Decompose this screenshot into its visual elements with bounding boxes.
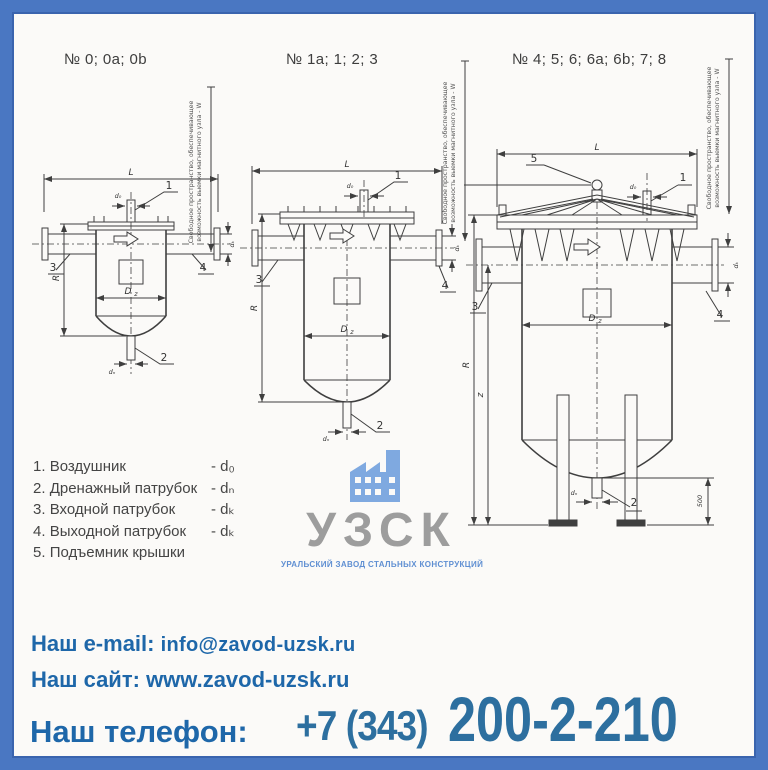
centerlines: [240, 180, 454, 440]
legend-item: 1. Воздушник - d₀: [33, 456, 235, 478]
callout-2: 2: [161, 352, 168, 364]
drain: dₙ 2: [109, 336, 174, 376]
legend-num: 2.: [33, 480, 46, 497]
callout-2: 2: [631, 497, 638, 509]
dim-label-dn: dₙ: [323, 435, 330, 443]
callout-2: 2: [377, 420, 384, 432]
legend-item: 5. Подъемник крышки: [33, 542, 235, 564]
logo-tagline: УРАЛЬСКИЙ ЗАВОД СТАЛЬНЫХ КОНСТРУКЦИЙ: [281, 560, 475, 569]
callout-5: 5: [531, 153, 538, 165]
contact-email-line: Наш e-mail: info@zavod-uzsk.ru: [31, 631, 356, 657]
dim-label-R: R: [250, 305, 260, 311]
email-value: info@zavod-uzsk.ru: [161, 634, 356, 656]
company-logo: УЗСК УРАЛЬСКИЙ ЗАВОД СТАЛЬНЫХ КОНСТРУКЦИ…: [281, 450, 475, 569]
note-line-1: Свободное пространство, обеспечивающее: [187, 101, 195, 244]
callout-4: 4: [200, 262, 207, 274]
callout-3: 3: [50, 262, 57, 274]
phone-label: Наш телефон:: [30, 714, 248, 750]
note-line-2: возможность выемки магнитного узла - W: [714, 68, 721, 207]
dim-label-L: L: [594, 143, 599, 153]
logo-abbr: УЗСК: [288, 506, 475, 556]
centerlines: [466, 173, 724, 510]
dim-label-dk: dₖ: [732, 261, 740, 268]
drawing-title-2: № 1a; 1; 2; 3: [286, 51, 378, 68]
legend-dim: - d₀: [211, 456, 235, 478]
legend-name: Выходной патрубок: [50, 523, 186, 540]
dim-label-D-sub: z: [349, 328, 354, 336]
note-line-1: Свободное пространство, обеспечивающее: [705, 67, 713, 210]
legend-name: Подъемник крышки: [50, 544, 185, 561]
callout-3: 3: [472, 301, 479, 313]
dim-label-dn: dₙ: [109, 368, 116, 376]
contact-phone-line: Наш телефон: +7 (343) 200-2-210: [0, 692, 768, 758]
legend-num: 1.: [33, 458, 46, 475]
note-line-1: Свободное пространство, обеспечивающее: [441, 82, 449, 225]
dim-Dz: D z: [96, 287, 166, 298]
dim-label-d0: d₀: [115, 192, 122, 200]
dim-label-D-sub: z: [597, 317, 602, 325]
dim-label-z: z: [476, 392, 486, 398]
lifting-eye: 5: [464, 153, 602, 202]
factory-icon: [346, 450, 410, 504]
note-line-2: возможность выемки магнитного узла - W: [196, 102, 203, 241]
dim-label-dn: dₙ: [571, 489, 578, 497]
callout-1: 1: [395, 170, 402, 182]
callout-3-group: 3: [48, 254, 70, 274]
callout-3: 3: [256, 274, 263, 286]
callout-4: 4: [442, 280, 449, 292]
drawing-title-3: № 4; 5; 6; 6a; 6b; 7; 8: [512, 51, 667, 68]
note-line-2: возможность выемки магнитного узла - W: [450, 83, 457, 222]
legend-num: 3.: [33, 501, 46, 518]
callout-4: 4: [717, 309, 724, 321]
air-vent: d₀ 1: [344, 170, 408, 212]
legend-name: Дренажный патрубок: [50, 480, 197, 497]
legend-num: 4.: [33, 523, 46, 540]
dim-label-D: D: [125, 287, 132, 297]
callout-1: 1: [680, 172, 687, 184]
site-label: Наш сайт:: [31, 667, 140, 692]
drain: dₙ 2: [323, 402, 390, 443]
callout-3-group: 3: [470, 283, 492, 313]
dim-label-D-sub: z: [133, 290, 138, 298]
dim-label-L: L: [128, 168, 133, 178]
dim-label-d0: d₀: [347, 182, 354, 190]
legend-item: 4. Выходной патрубок - dₖ: [33, 521, 235, 543]
callout-1: 1: [166, 180, 173, 192]
contact-site-line: Наш сайт: www.zavod-uzsk.ru: [31, 667, 349, 693]
legend-dim: - dₖ: [211, 521, 235, 543]
dim-label-D: D: [341, 325, 348, 335]
legend-item: 3. Входной патрубок - dₖ: [33, 499, 235, 521]
legend-name: Входной патрубок: [50, 501, 175, 518]
flow-arrow: [574, 239, 600, 255]
free-space-note-2: Свободное пространство, обеспечивающее в…: [438, 58, 472, 248]
callout-4-group: 4: [439, 266, 456, 292]
site-value: www.zavod-uzsk.ru: [146, 667, 349, 692]
legend-name: Воздушник: [50, 458, 126, 475]
email-label: Наш e-mail:: [31, 631, 154, 656]
dim-label-R: R: [52, 275, 62, 281]
air-vent: d₀ 1: [112, 180, 178, 222]
legend-item: 2. Дренажный патрубок - dₙ: [33, 478, 235, 500]
legend-num: 5.: [33, 544, 46, 561]
dim-label-R: R: [462, 362, 472, 368]
legend-dim: - dₙ: [211, 478, 234, 500]
drawing-title-1: № 0; 0a; 0b: [64, 51, 147, 68]
callout-4-group: 4: [706, 291, 730, 321]
free-space-note-1: Свободное пространство, обеспечивающее в…: [184, 84, 218, 259]
dim-label-500: 500: [696, 495, 704, 507]
flyer-page: № 0; 0a; 0b № 1a; 1; 2; 3 № 4; 5; 6; 6a;…: [0, 0, 768, 770]
phone-number: 200-2-210: [448, 684, 678, 756]
dim-label-d0: d₀: [630, 183, 637, 191]
free-space-note-3: Свободное пространство, обеспечивающее в…: [702, 56, 736, 221]
dim-Dz: D z: [304, 325, 390, 336]
phone-prefix: +7 (343): [296, 702, 428, 750]
dim-label-D: D: [589, 314, 596, 324]
drawing-separator-medium: L d₀ 1: [232, 140, 462, 450]
dim-label-L: L: [344, 160, 349, 170]
legend-dim: - dₖ: [211, 499, 235, 521]
air-vent: d₀ 1: [627, 172, 692, 215]
parts-legend: 1. Воздушник - d₀ 2. Дренажный патрубок …: [33, 456, 235, 564]
dim-R: R: [250, 214, 342, 402]
